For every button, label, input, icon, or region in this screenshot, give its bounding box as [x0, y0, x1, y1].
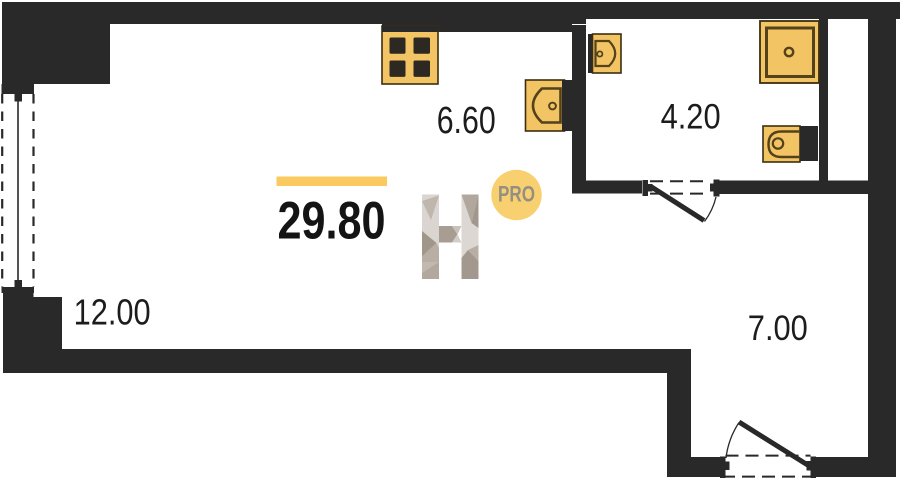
- svg-text:12.00: 12.00: [74, 291, 151, 332]
- svg-text:29.80: 29.80: [278, 192, 386, 251]
- svg-text:4.20: 4.20: [661, 97, 721, 136]
- svg-text:7.00: 7.00: [748, 309, 808, 348]
- svg-text:PRO: PRO: [498, 182, 535, 207]
- svg-text:6.60: 6.60: [437, 100, 496, 142]
